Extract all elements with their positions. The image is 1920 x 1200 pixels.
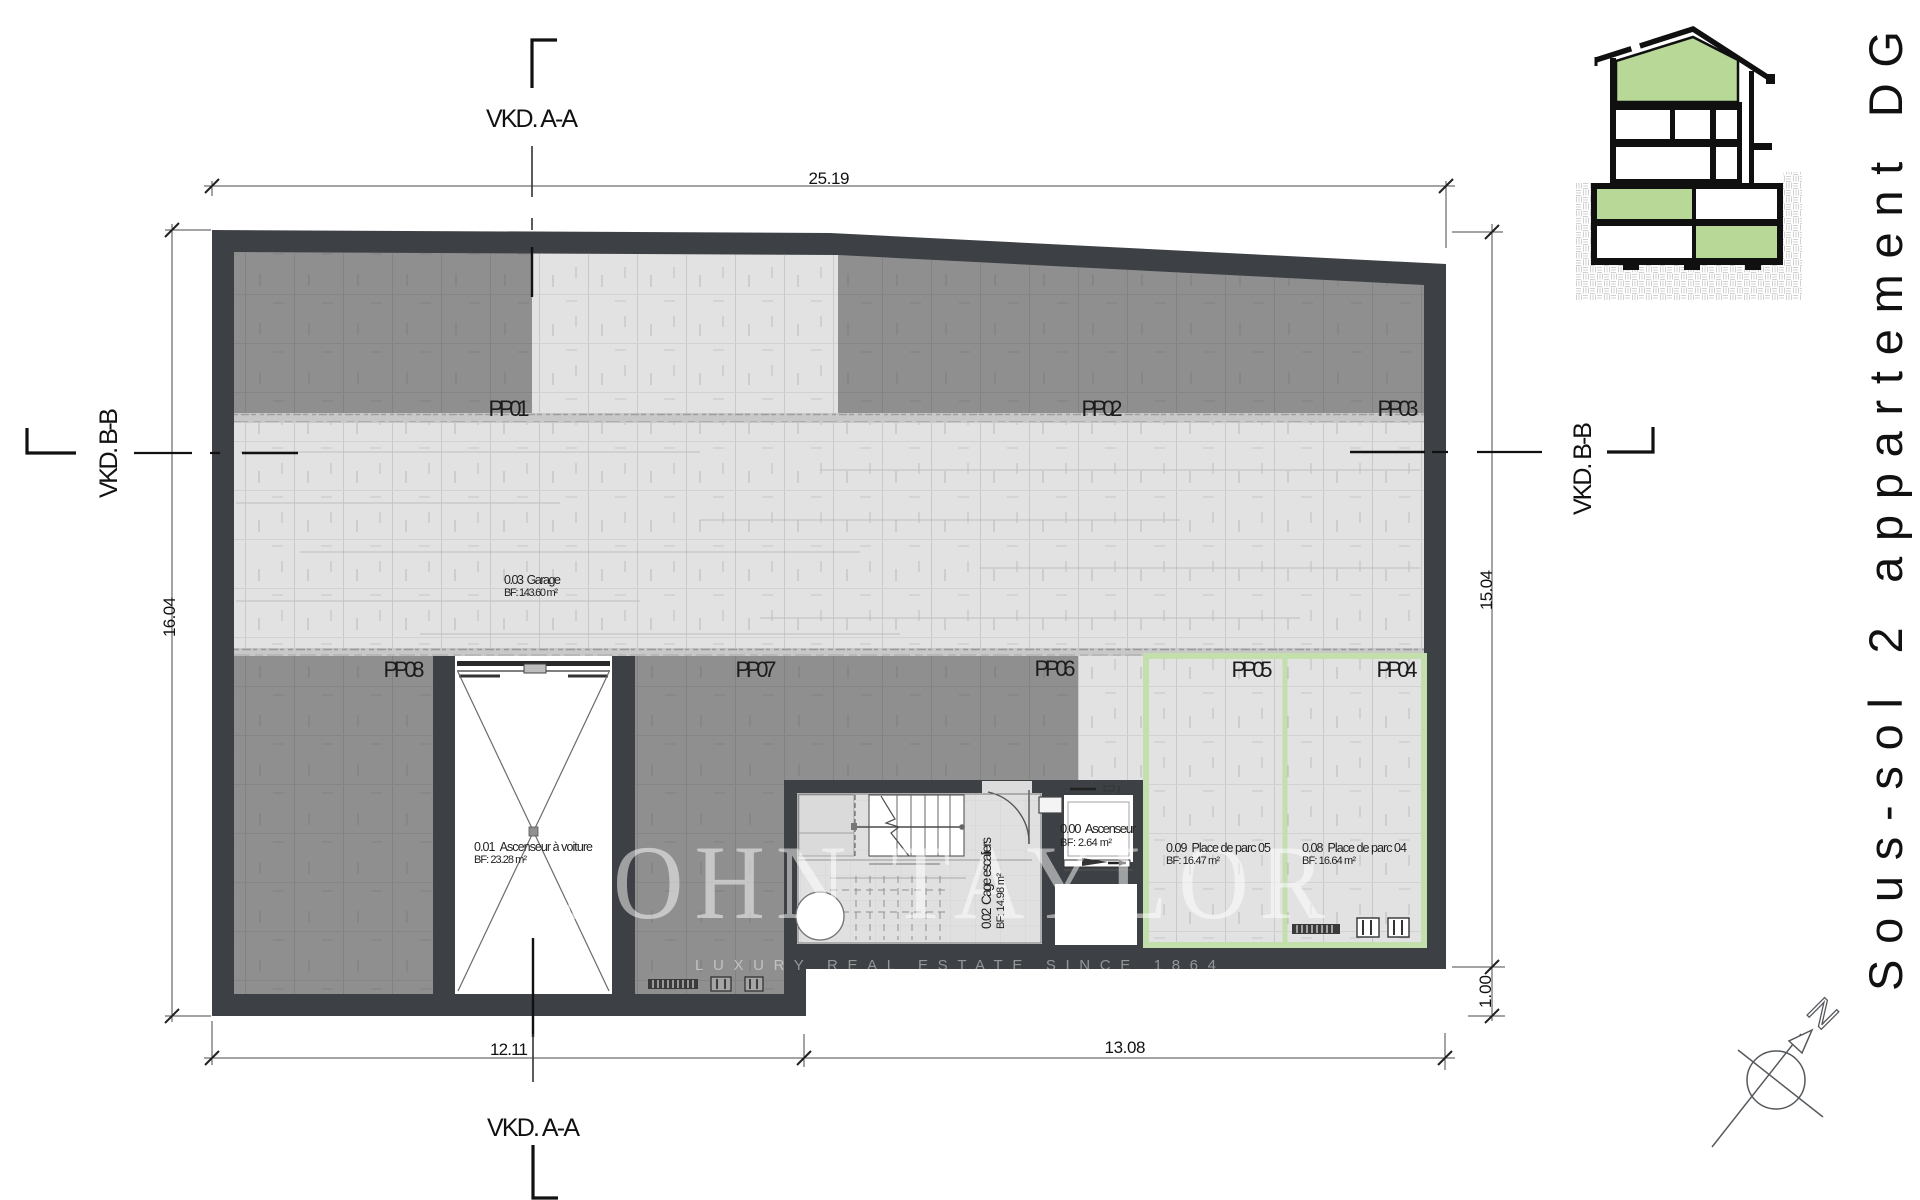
svg-text:16.04: 16.04 (160, 597, 179, 637)
svg-text:PP04: PP04 (1377, 657, 1418, 682)
svg-text:PP07: PP07 (736, 657, 777, 682)
svg-text:BF: 16.47 m²: BF: 16.47 m² (1166, 855, 1220, 867)
svg-text:15.04: 15.04 (1477, 570, 1496, 610)
svg-text:25.19: 25.19 (809, 169, 850, 188)
svg-text:0.01 Ascenseur à voiture: 0.01 Ascenseur à voiture (474, 840, 593, 854)
svg-text:PP03: PP03 (1378, 396, 1419, 421)
svg-text:PP01: PP01 (489, 396, 530, 421)
svg-text:BF: 16.64 m²: BF: 16.64 m² (1302, 855, 1356, 867)
svg-text:PP02: PP02 (1082, 396, 1123, 421)
svg-text:BF: 14.98 m²: BF: 14.98 m² (995, 873, 1007, 929)
svg-text:VKD. B-B: VKD. B-B (1569, 422, 1597, 515)
svg-text:VKD. A-A: VKD. A-A (486, 105, 578, 133)
svg-text:PP08: PP08 (384, 657, 425, 682)
svg-text:0.02 Cage escaliers: 0.02 Cage escaliers (979, 837, 994, 929)
svg-text:0.00 Ascenseur: 0.00 Ascenseur (1060, 821, 1137, 836)
svg-text:0.03 Garage: 0.03 Garage (504, 573, 561, 587)
svg-text:PP06: PP06 (1035, 656, 1076, 681)
svg-text:BF: 23.28 m²: BF: 23.28 m² (474, 854, 527, 866)
svg-text:0.09 Place de parc 05: 0.09 Place de parc 05 (1166, 841, 1271, 855)
svg-text:PP05: PP05 (1232, 657, 1273, 682)
svg-text:LUXURY REAL ESTATE SINCE 1864: LUXURY REAL ESTATE SINCE 1864 (695, 957, 1225, 974)
svg-text:VKD. A-A: VKD. A-A (487, 1114, 580, 1142)
svg-text:13.08: 13.08 (1105, 1038, 1146, 1057)
svg-text:1.00: 1.00 (1476, 975, 1495, 1008)
svg-text:BF: 143.60 m²: BF: 143.60 m² (504, 587, 558, 599)
svg-text:VKD. B-B: VKD. B-B (95, 408, 123, 498)
svg-text:0.08 Place de parc 04: 0.08 Place de parc 04 (1302, 841, 1407, 855)
svg-text:12.11: 12.11 (490, 1040, 528, 1059)
svg-text:BF: 2.64 m²: BF: 2.64 m² (1060, 837, 1112, 849)
